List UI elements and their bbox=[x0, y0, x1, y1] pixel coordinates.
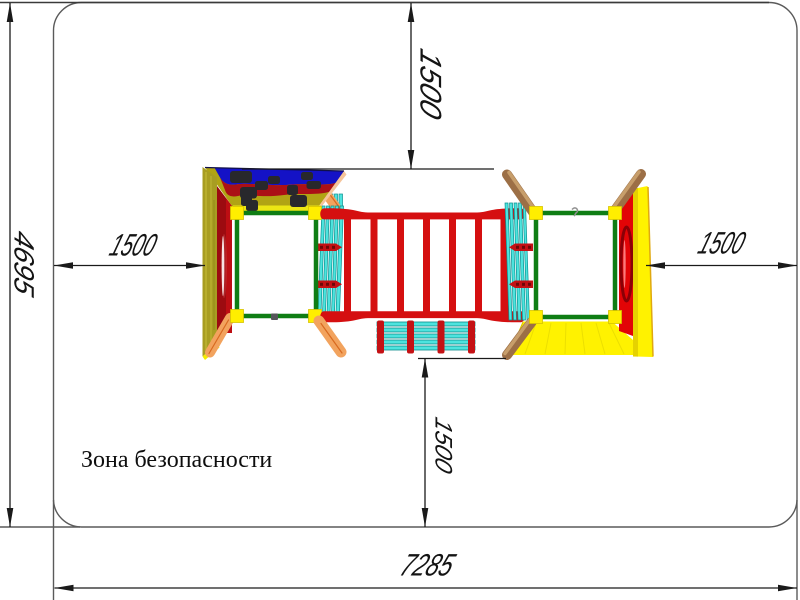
svg-text:1500: 1500 bbox=[106, 227, 162, 262]
svg-text:1500: 1500 bbox=[414, 45, 448, 124]
svg-text:Зона безопасности: Зона безопасности bbox=[81, 447, 272, 473]
svg-text:1500: 1500 bbox=[694, 225, 750, 260]
svg-text:4695: 4695 bbox=[8, 226, 39, 300]
svg-text:1500: 1500 bbox=[430, 414, 456, 477]
svg-text:7285: 7285 bbox=[395, 548, 460, 583]
